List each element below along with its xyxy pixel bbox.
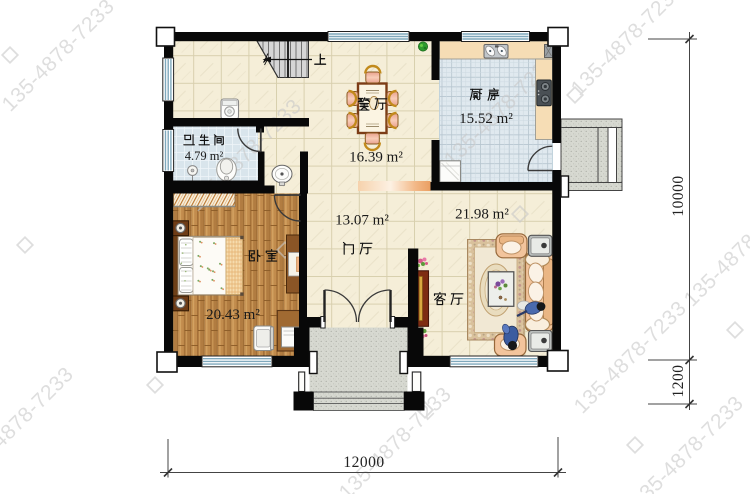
svg-text:135-4878-7233: 135-4878-7233 <box>567 0 689 100</box>
svg-text:15.52 m²: 15.52 m² <box>459 111 513 127</box>
svg-text:135-4878-7233: 135-4878-7233 <box>680 190 750 312</box>
svg-text:21.98 m²: 21.98 m² <box>455 207 509 223</box>
svg-text:13.07 m²: 13.07 m² <box>335 213 389 229</box>
svg-text:4.79 m²: 4.79 m² <box>185 149 224 163</box>
svg-text:10000: 10000 <box>670 175 687 216</box>
svg-text:12000: 12000 <box>343 454 384 471</box>
svg-text:135-4878-7233: 135-4878-7233 <box>0 363 78 485</box>
svg-text:16.39 m²: 16.39 m² <box>349 150 403 166</box>
svg-text:135-4878-7233: 135-4878-7233 <box>0 0 119 116</box>
svg-text:135-4878-7233: 135-4878-7233 <box>570 297 692 419</box>
svg-text:1200: 1200 <box>670 365 687 398</box>
svg-text:20.43 m²: 20.43 m² <box>206 307 260 323</box>
